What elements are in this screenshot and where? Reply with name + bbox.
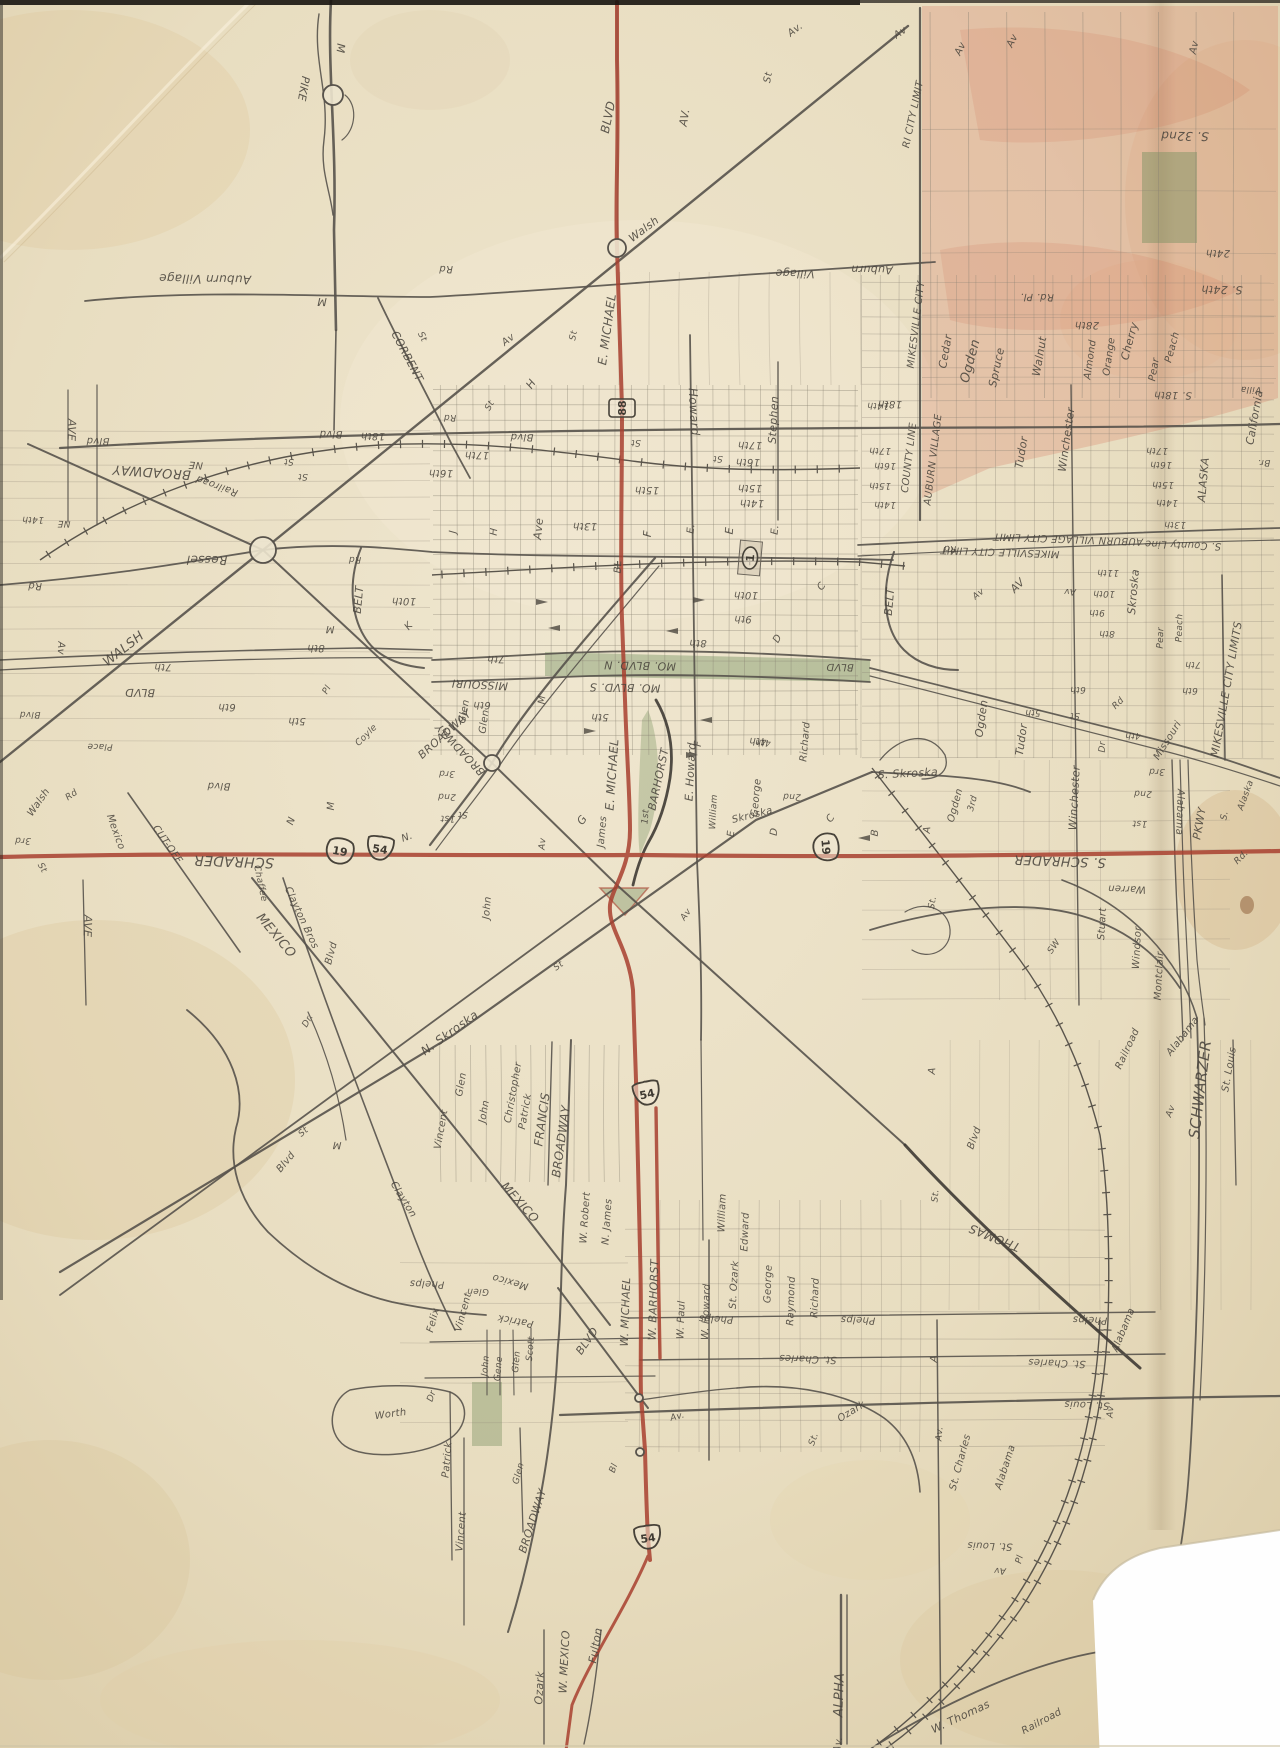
street-label: Auburn Village (159, 271, 252, 287)
street-label: M (537, 695, 549, 705)
street-label: A (922, 826, 934, 835)
street-label: 6th (218, 701, 236, 712)
street-label: 14th (1156, 497, 1178, 507)
street-label: John (481, 896, 494, 922)
street-label: ALPHA (831, 1673, 848, 1719)
street-label: John (480, 1355, 492, 1379)
street-label: 15th (738, 482, 762, 493)
railroad-tick (903, 562, 904, 570)
street-label: 4th (755, 737, 771, 748)
street-label: 15th (1152, 479, 1174, 489)
street-label: M (326, 801, 337, 810)
street-label: 17th (1146, 445, 1168, 455)
railroad-tick (663, 461, 664, 469)
street-label: St (298, 471, 308, 481)
route-shield-number: 88 (616, 400, 629, 415)
street-label: Phelps (840, 1313, 875, 1325)
street-label: E (723, 527, 737, 535)
street-label: 13th (1164, 519, 1186, 529)
street-label: S. (1219, 810, 1230, 821)
street-label: William (716, 1193, 728, 1232)
street-label: Edward (739, 1212, 751, 1252)
street-label: St (713, 453, 723, 463)
route-shield-1: 1 (738, 540, 763, 576)
street-label: 17th (869, 445, 891, 455)
street-label: St (458, 809, 468, 819)
street-label: E. (686, 523, 698, 534)
railroad-tick (881, 560, 882, 568)
green-park-area (1142, 152, 1197, 243)
railroad-tick (1094, 1352, 1102, 1353)
street-label: St. (930, 1189, 941, 1203)
street-label: W. Howard (700, 1283, 713, 1340)
scan-edge-top (0, 0, 860, 5)
street-label: 8th (307, 642, 325, 653)
street-label: St. Charles (779, 1352, 837, 1365)
street-label: Warren (1108, 882, 1146, 894)
street-label: BLVD (125, 686, 155, 700)
street-label: MO. BLVD. S (589, 680, 660, 694)
street-label: BLVD (826, 661, 854, 672)
route-shield-number: 19 (331, 844, 348, 859)
street-label: St (568, 330, 580, 342)
street-label: Blvd (207, 780, 231, 792)
junction-circle (635, 1394, 643, 1402)
street-label: William (708, 794, 720, 830)
street-label: Rd (349, 554, 362, 564)
street-label: W. Paul (675, 1300, 687, 1339)
street-label: Blvd (510, 431, 534, 442)
street-label: Pear (1156, 626, 1167, 649)
street-label: 6th (473, 699, 491, 710)
street-label: AVE (65, 418, 79, 442)
street-label: Br. (1257, 457, 1270, 467)
street-label: 8th (689, 637, 707, 648)
junction-circle (250, 537, 276, 563)
street-label: Rd. Pl. (1020, 291, 1054, 303)
street-label: 1st (440, 813, 455, 824)
junction-circle (608, 239, 626, 257)
street-label: Alabama (1173, 788, 1186, 836)
street-label: NE (188, 458, 204, 470)
street-label: H (489, 527, 501, 536)
street-label: Blvd (86, 435, 110, 446)
street-label: Ave (531, 517, 546, 541)
street-label: Stephen (766, 396, 781, 444)
street-label: 5th (591, 711, 609, 722)
street-label: 1st (1132, 818, 1147, 829)
street-label: St (631, 437, 641, 447)
street-label: 5th (288, 715, 306, 726)
street-label: 17th (738, 439, 762, 450)
street-label: St. Louis (967, 1539, 1013, 1552)
street-label: 3rd (15, 835, 31, 846)
street-label: Av (55, 640, 67, 656)
street-label: Phelps (409, 1277, 444, 1289)
street-label: 15th (635, 484, 659, 495)
street-label: 7th (487, 653, 505, 664)
street-label: M (332, 1139, 341, 1150)
street-label: Phelps (1072, 1313, 1107, 1325)
street-label: M (325, 623, 334, 634)
street-label: Dr (1098, 740, 1108, 753)
street-label: 7th (1185, 659, 1201, 669)
scan-edge-left (0, 0, 3, 1300)
route-shield-number: 19 (818, 839, 832, 855)
street-label: 11th (1097, 567, 1119, 577)
railroad-tick (510, 443, 511, 451)
railroad-tick (1102, 1352, 1110, 1353)
street-label: Blvd (19, 709, 40, 719)
hand-drawn-map: 8811954195454 PIKEMBLVDAV.StWalshAv.AvAv… (0, 0, 1280, 1760)
junction-circle (636, 1448, 644, 1456)
street-label: Av (993, 1565, 1007, 1575)
street-label: A (927, 1067, 939, 1076)
street-label: 1st (640, 809, 651, 825)
street-label: 9th (734, 613, 752, 624)
street-label: 17th (465, 449, 489, 460)
street-label: E (726, 830, 738, 838)
street-label: Rd (28, 580, 42, 591)
street-label: 16th (1150, 459, 1172, 469)
street-label: Glen (511, 1350, 523, 1373)
street-label: E. (770, 524, 782, 535)
street-label: St. Charles (1028, 1356, 1086, 1369)
route-shield-number: 54 (640, 1531, 657, 1546)
street-label: NE (57, 518, 70, 528)
street-label: 16th (874, 460, 896, 470)
route-shield-number: 1 (744, 554, 758, 563)
street-label: Peach (1175, 613, 1186, 642)
street-label: 6th (1070, 684, 1086, 694)
street-label: 16th (429, 467, 453, 478)
street-label: 10th (1093, 588, 1115, 598)
street-label: 2nd (1134, 788, 1152, 799)
street-label: 10th (734, 589, 758, 600)
street-label: Village (775, 267, 815, 281)
street-label: S. 24th (1201, 283, 1243, 297)
street-label: 3rd (1149, 766, 1165, 777)
street-label: Rd (444, 412, 457, 422)
street-label: Rd (943, 543, 956, 553)
street-label: 2nd (438, 791, 456, 802)
route-shield-88: 88 (609, 399, 635, 417)
street-label: Glen (467, 1286, 489, 1297)
street-label: 24th (1206, 247, 1230, 258)
street-label: 7th (154, 661, 172, 672)
street-label: W. MICHAEL (618, 1277, 633, 1347)
street-label: 18th (361, 430, 385, 441)
street-label: 14th (867, 400, 889, 410)
route-shield-number: 54 (371, 842, 388, 857)
street-label: BELT (882, 586, 897, 616)
railroad-tick (532, 445, 533, 453)
street-label: MO. BLVD. N (604, 658, 676, 672)
street-label: B (870, 829, 882, 837)
street-label: Raymond (785, 1276, 798, 1326)
street-label: Phelps (698, 1312, 733, 1324)
street-label: Av. (934, 1426, 945, 1442)
street-label: Place (87, 741, 113, 751)
street-label: 13th (573, 520, 597, 531)
street-label: M (317, 295, 327, 308)
street-label: 8th (1099, 628, 1115, 638)
street-label: 10th (392, 595, 416, 606)
street-label: Av (1063, 586, 1077, 596)
street-label: Howard (686, 388, 702, 437)
street-label: BELT (351, 584, 366, 614)
street-label: 28th (1075, 319, 1099, 330)
street-label: S. 18th (1154, 389, 1192, 401)
railroad-tick (356, 443, 357, 451)
street-label: M (334, 43, 348, 54)
street-label: Ozark (532, 1670, 547, 1705)
street-label: St (1070, 710, 1080, 720)
street-label: Av (537, 837, 548, 851)
street-label: BL (613, 560, 625, 574)
railroad-tick (685, 462, 686, 470)
street-label: S. SCHRADER (1014, 851, 1107, 869)
street-label: 4th (1125, 730, 1141, 740)
street-label: 2nd (783, 791, 801, 802)
street-label: Auburn (851, 263, 894, 277)
street-label: 3rd (439, 768, 455, 779)
street-label: 14th (874, 499, 896, 509)
junction-circle (323, 85, 343, 105)
street-label: Av (1105, 1405, 1116, 1419)
street-label: Windsor (1131, 926, 1144, 970)
street-label: S. 32nd (1161, 129, 1209, 144)
street-label: St. Louis (1064, 1398, 1110, 1411)
street-label: 9th (1089, 607, 1105, 617)
street-label: 5th (1025, 707, 1041, 717)
railroad-tick (1102, 1192, 1110, 1193)
street-label: Rd (439, 263, 453, 274)
street-label: Richard (809, 1277, 821, 1318)
street-label: 15th (869, 480, 891, 490)
street-label: 16th (736, 456, 760, 467)
street-label: St (284, 456, 294, 466)
street-label: Blvd (319, 428, 343, 439)
street-label: 14th (740, 497, 764, 508)
street-label: George (762, 1265, 774, 1304)
street-label: 6th (1182, 685, 1198, 695)
street-label: Villa (1241, 384, 1262, 394)
street-label: A (929, 1355, 941, 1364)
scanned-map-page: 8811954195454 PIKEMBLVDAV.StWalshAv.AvAv… (0, 0, 1280, 1760)
street-label: Ressel (186, 553, 227, 568)
street-label: 14th (22, 514, 44, 524)
street-label: Stuart (1096, 907, 1109, 941)
street-label: D (769, 827, 781, 836)
railroad-tick (1100, 1170, 1108, 1171)
street-label: AVE (81, 914, 95, 938)
